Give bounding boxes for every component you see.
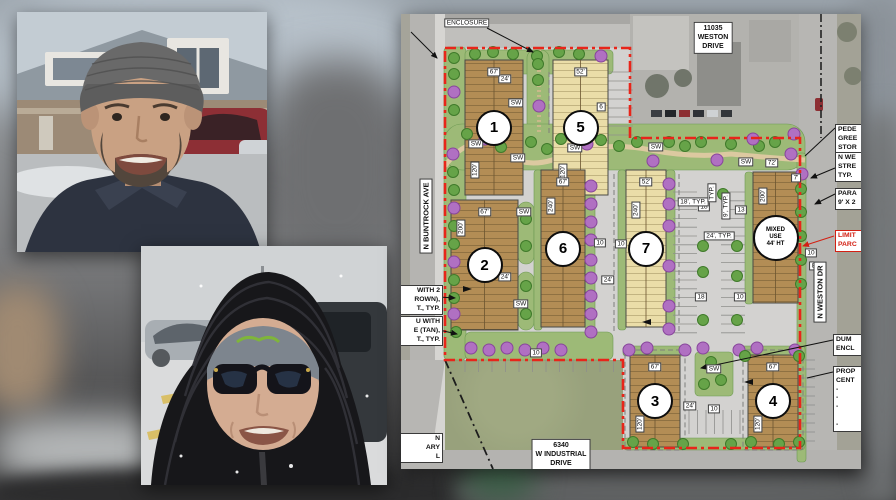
ornamental-tree [501,342,513,354]
news-composite: SWSWSWSWSWSWSWSWSW610101010101018181324'… [0,0,896,500]
plan-dimension-label: 10 [615,239,627,248]
photo-man [17,12,267,252]
shade-tree [448,167,459,178]
building-length-dim: 240' [631,201,640,218]
ornamental-tree [585,254,597,266]
ornamental-tree [697,342,709,354]
ornamental-tree [585,216,597,228]
bg-mid-dark-blob [262,60,412,270]
sidewalk-label: SW [516,207,531,216]
plan-dimension-label: 24' [601,275,614,284]
ornamental-tree [647,155,659,167]
callout-note-left: WITH 2 ROWN), T., TYP. [401,285,443,315]
ornamental-tree [448,86,460,98]
street-label: N WESTON DR [814,261,827,322]
building-number-7: 7 [628,231,664,267]
ornamental-tree [585,290,597,302]
plan-dimension-label: 10 [734,292,746,301]
shade-tree [732,315,743,326]
building-length-dim: 200' [456,219,465,236]
shade-tree [533,75,544,86]
shade-tree [628,437,639,448]
callout-note: PEDE GREE STOR [835,124,861,154]
bg-right-edge [858,110,896,500]
shade-tree [449,239,460,250]
callout-note-left: N ARY L [401,433,443,463]
shade-tree [732,271,743,282]
enclosure-label: ENCLOSURE [444,18,489,27]
ornamental-tree [595,50,607,62]
plan-dimension-label: 18 [695,292,707,301]
plan-dimension-label: 7' [791,173,801,182]
ornamental-tree [679,344,691,356]
photo-man-graphic [17,12,267,252]
ornamental-tree [448,308,460,320]
aerial-details [633,14,861,138]
shade-tree [596,135,607,146]
building-length-dim: 120' [753,415,762,432]
building-width-dim: 52' [639,177,652,186]
building-length-dim: 120' [635,415,644,432]
callout-note-left: U WITH E (TAN), T., TYP. [401,316,443,346]
building-length-dim: 120' [470,161,479,178]
shade-tree [449,105,460,116]
ornamental-tree [751,342,763,354]
ornamental-tree [663,300,675,312]
shade-tree [451,327,462,338]
mixed-use-circle: MIXED USE 44' HT [753,215,799,261]
plan-dimension-label: 18', TYP. [678,197,709,206]
site-plan: SWSWSWSWSWSWSWSWSW610101010101018181324'… [401,14,861,469]
building-width-dim: 67' [766,362,779,371]
ornamental-tree [448,202,460,214]
shade-tree [574,49,585,60]
shade-tree [698,315,709,326]
shade-tree [698,241,709,252]
ornamental-tree [585,326,597,338]
ornamental-tree [663,220,675,232]
ornamental-tree [663,260,675,272]
address-label: 11035 WESTON DRIVE [694,22,733,54]
ornamental-tree [448,256,460,268]
shade-tree [449,275,460,286]
photo-woman-graphic [141,246,387,485]
street-label: N BUNTROCK AVE [420,178,433,253]
ornamental-tree [641,342,653,354]
shade-tree [716,375,727,386]
ornamental-tree [585,272,597,284]
ornamental-tree [663,323,675,335]
building-number-5: 5 [563,110,599,146]
callout-note: DUM ENCL [833,334,861,356]
ornamental-tree [623,344,635,356]
ornamental-tree [585,308,597,320]
callout-note: PARA 9' X 2 [835,188,861,210]
building-width-dim: 67' [478,207,491,216]
building-number-4: 4 [755,383,791,419]
property-line-diagonal [445,360,493,469]
ornamental-tree [465,342,477,354]
sidewalk-label: SW [513,299,528,308]
ornamental-tree [585,180,597,192]
building-number-6: 6 [545,231,581,267]
shade-tree [462,129,473,140]
shade-tree [614,141,625,152]
plan-dimension-label: 10 [530,348,542,357]
shade-tree [449,69,460,80]
building-width-dim: 52' [574,67,587,76]
callout-note: PROP CENT - - - - [833,366,861,432]
ornamental-tree [663,178,675,190]
sidewalk-label: SW [706,364,721,373]
shade-tree [680,141,691,152]
address-label: 6340 W INDUSTRIAL DRIVE [532,439,591,469]
callout-note: N WE STRE TYP. [835,152,861,182]
plan-dimension-label: 9', TYP. [721,193,730,220]
shade-tree [542,144,553,155]
plan-dimension-label: 10 [594,238,606,247]
shade-tree [533,59,544,70]
plan-dimension-label: 10 [708,404,720,413]
callout-limited-parking: LIMIT PARC [835,230,861,252]
plan-dimension-label: 10 [805,248,817,257]
shade-tree [732,241,743,252]
ornamental-tree [711,154,723,166]
plan-dimension-label: TYP. [707,184,716,203]
plan-dimension-label: 72' [765,158,778,167]
shade-tree [521,281,532,292]
shade-tree [521,309,532,320]
photo-woman [141,246,387,485]
ornamental-tree [663,198,675,210]
shade-tree [746,437,757,448]
shade-tree [449,185,460,196]
ornamental-tree [483,344,495,356]
ornamental-tree [785,148,797,160]
ornamental-tree [555,344,567,356]
ornamental-tree [447,148,459,160]
shade-tree [470,49,481,60]
shade-tree [521,241,532,252]
shade-tree [526,137,537,148]
shade-tree [699,379,710,390]
plan-dimension-label: 24' [683,401,696,410]
building-width-dim: 67' [487,67,500,76]
plan-dimension-label: 13 [735,205,747,214]
ornamental-tree [585,198,597,210]
building-width-dim: 67' [556,177,569,186]
plan-dimension-label: 6 [597,102,606,111]
plan-dimension-label: 24' [498,272,511,281]
sidewalk-label: SW [508,98,523,107]
sidewalk-label: SW [738,157,753,166]
ornamental-tree [533,100,545,112]
building-number-3: 3 [637,383,673,419]
shade-tree [698,267,709,278]
sidewalk-label: SW [648,142,663,151]
shade-tree [449,53,460,64]
plan-dimension-label: 24', TYP. [704,231,735,240]
shade-tree [508,49,519,60]
shade-tree [726,139,737,150]
building-length-dim: 240' [546,197,555,214]
building-number-1: 1 [476,110,512,146]
building-number-2: 2 [467,247,503,283]
building-width-dim: 67' [648,362,661,371]
sidewalk-label: SW [510,153,525,162]
building-length-dim: 200' [758,187,767,204]
bg-tan-blob [0,285,60,410]
